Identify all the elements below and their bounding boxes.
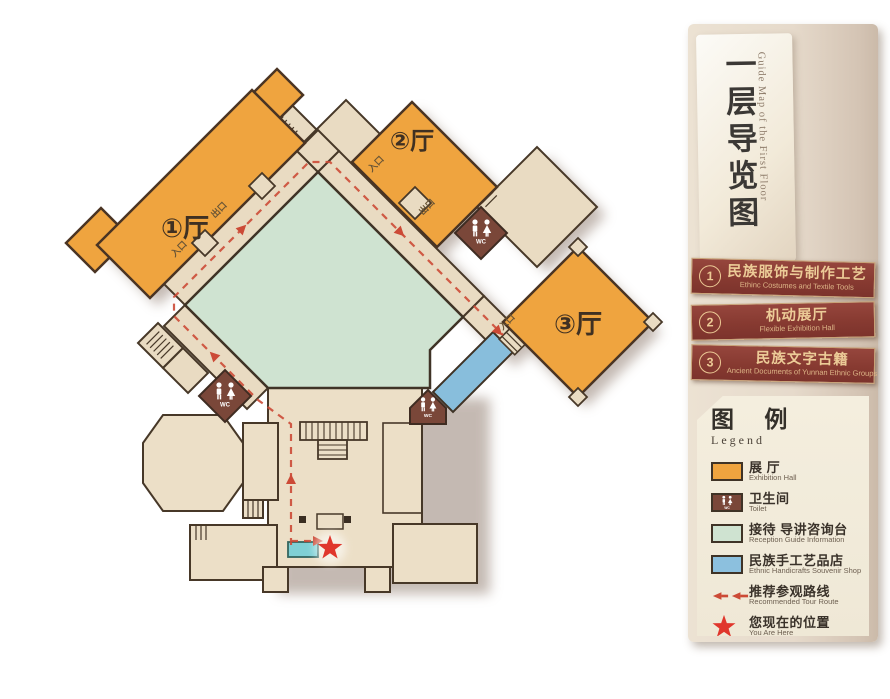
- exhibition-swatch: [711, 462, 743, 481]
- legend-row-here: 您现在的位置 You Are Here: [711, 611, 859, 642]
- route-arrow-icon: [711, 590, 749, 602]
- page-title-en: Guide Map of the First Floor: [755, 48, 770, 262]
- legend-row-toilet: 卫生间 Toilet: [711, 487, 859, 518]
- legend-label-en: Ethnic Handicrafts Souvenir Shop: [749, 567, 861, 575]
- legend: 图 例 Legend 展 厅 Exhibition Hall 卫生间 Toile…: [697, 396, 869, 636]
- hall-3-number: 3: [699, 351, 721, 373]
- hall-list-item-3: 3 民族文字古籍 Ancient Documents of Yunnan Eth…: [691, 344, 876, 384]
- legend-row-shop: 民族手工艺品店 Ethnic Handicrafts Souvenir Shop: [711, 549, 859, 580]
- hall-3-name-en: Ancient Documents of Yunnan Ethnic Group…: [727, 367, 878, 378]
- toilet-swatch: [711, 493, 743, 512]
- page-title: 一层导览图: [722, 48, 757, 263]
- pillar: [299, 516, 306, 523]
- legend-label-en: Recommended Tour Route: [749, 598, 839, 606]
- legend-row-exhibition: 展 厅 Exhibition Hall: [711, 456, 859, 487]
- you-are-here-star-icon: [711, 614, 737, 640]
- hall-list-item-2: 2 机动展厅 Flexible Exhibition Hall: [691, 301, 876, 341]
- legend-label-cn: 接待 导讲咨询台: [749, 523, 848, 537]
- hall-2-name-en: Flexible Exhibition Hall: [727, 324, 867, 335]
- legend-label-en: Exhibition Hall: [749, 474, 797, 482]
- hall-2-label: ②厅: [390, 128, 434, 155]
- legend-label-en: Reception Guide Information: [749, 536, 848, 544]
- pillar: [344, 516, 351, 523]
- legend-label-cn: 卫生间: [749, 492, 790, 506]
- legend-label-en: Toilet: [749, 505, 790, 513]
- hall-2-name-cn: 机动展厅: [727, 307, 867, 325]
- legend-row-reception: 接待 导讲咨询台 Reception Guide Information: [711, 518, 859, 549]
- reception-swatch: [711, 524, 743, 543]
- hall-1-name-en: Ethinc Costumes and Textile Tools: [727, 281, 867, 292]
- legend-label-cn: 民族手工艺品店: [749, 554, 861, 568]
- info-panel: 一层导览图 Guide Map of the First Floor 1 民族服…: [688, 24, 878, 642]
- hall-2-number: 2: [699, 311, 721, 333]
- toilet-icon: [722, 496, 732, 510]
- hall-list: 1 民族服饰与制作工艺 Ethinc Costumes and Textile …: [691, 260, 875, 389]
- title-paper: 一层导览图 Guide Map of the First Floor: [696, 33, 796, 263]
- legend-title: 图 例: [711, 408, 859, 431]
- floor-plan: WC: [0, 0, 690, 694]
- legend-label-cn: 推荐参观路线: [749, 585, 839, 599]
- hall-1-label: ①厅: [161, 213, 209, 243]
- legend-title-en: Legend: [711, 433, 859, 448]
- legend-label-cn: 展 厅: [749, 461, 797, 475]
- legend-label-en: You Are Here: [749, 629, 830, 637]
- hall-list-item-1: 1 民族服饰与制作工艺 Ethinc Costumes and Textile …: [691, 258, 876, 298]
- information-desk: [317, 514, 343, 529]
- legend-label-cn: 您现在的位置: [749, 616, 830, 630]
- legend-row-route: 推荐参观路线 Recommended Tour Route: [711, 580, 859, 611]
- hall-3-label: ③厅: [554, 309, 602, 339]
- hall-1-number: 1: [699, 265, 722, 288]
- shop-swatch: [711, 555, 743, 574]
